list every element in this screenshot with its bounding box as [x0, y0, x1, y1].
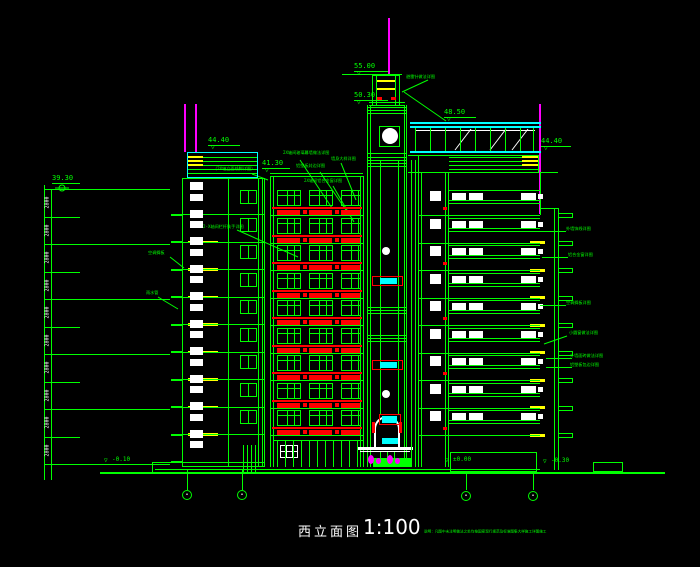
cad-line [448, 218, 540, 219]
cad-line [270, 176, 271, 467]
cad-line [277, 388, 301, 389]
floor-line [418, 408, 540, 409]
cad-line [341, 305, 361, 306]
square-window [430, 301, 441, 311]
ribbon-pane [521, 358, 536, 365]
storefront-mullion [333, 441, 334, 467]
level-facade-top: 41.30 [262, 160, 283, 167]
cad-line [277, 333, 301, 334]
cad-line [303, 293, 307, 297]
ribbon-pane [521, 248, 536, 255]
facade-window [309, 410, 333, 426]
storefront-mullion [277, 441, 278, 467]
canopy-chord [410, 151, 541, 153]
slab-tick [171, 269, 182, 271]
cad-line [52, 183, 80, 184]
cad-line [448, 286, 540, 287]
cad-line [248, 328, 249, 342]
cad-line [358, 218, 359, 234]
cad-line [326, 410, 327, 426]
cad-line [372, 75, 400, 76]
cad-line [540, 208, 558, 209]
dimension-text: 2800 [46, 271, 51, 291]
stair-window [190, 402, 203, 410]
annotation: 2X轴间玻璃幕墙做法详图 [283, 152, 329, 156]
slab-tick [171, 241, 182, 243]
cad-line [367, 110, 407, 111]
floor-line [418, 243, 540, 244]
cad-line [367, 166, 407, 167]
slab-bracket [558, 268, 573, 273]
ribbon-pane [452, 358, 466, 365]
cad-line [248, 218, 249, 232]
dimension-text: 2800 [46, 244, 51, 264]
ribbon-pane [521, 413, 536, 420]
cad-line [319, 190, 320, 206]
facade-window [277, 190, 301, 206]
slab-tick [171, 434, 182, 436]
facade-window [277, 328, 301, 344]
annotation: 2X轴间铝合金窗详图 [304, 180, 342, 184]
stair-window [190, 249, 203, 256]
cad-line [448, 203, 540, 204]
cad-line [448, 423, 540, 424]
shrub [376, 458, 381, 464]
stair-window [190, 221, 203, 228]
cad-line [367, 153, 407, 154]
cad-line [358, 383, 359, 399]
cad-line [287, 273, 288, 289]
level-antenna-top: 55.00 [354, 63, 375, 70]
dimension-text: 2800 [46, 299, 51, 319]
cad-line [248, 300, 249, 314]
spandrel-line [272, 372, 362, 374]
ribbon-pane [521, 221, 536, 228]
cad-line [294, 410, 295, 426]
glass-frame [372, 276, 403, 286]
cad-line [277, 278, 301, 279]
truss-diagonals [455, 129, 528, 150]
cad-line [335, 348, 339, 352]
grille-window [280, 445, 298, 458]
facade-window [309, 218, 333, 234]
dimension-text: 2800 [46, 381, 51, 401]
cad-line [277, 195, 301, 196]
floor-line [182, 462, 265, 463]
cad-line [319, 383, 320, 399]
truss-post [505, 128, 506, 151]
cad-line [351, 245, 352, 261]
cad-line [367, 160, 407, 161]
cad-line [319, 245, 320, 261]
cad-line [294, 273, 295, 289]
facade-window [309, 355, 333, 371]
drawing-title: 西立面图 [298, 521, 362, 540]
floor-line [418, 435, 540, 436]
shrub [395, 458, 400, 464]
cad-line [341, 360, 361, 361]
square-window [430, 246, 441, 256]
cad-line [377, 97, 382, 100]
cad-line [294, 245, 295, 261]
stair-window [190, 441, 203, 448]
cad-line [448, 245, 540, 246]
cad-line [448, 368, 540, 369]
ribbon-pane [538, 359, 543, 364]
cad-line [319, 273, 320, 289]
facade-window [277, 273, 301, 289]
level-parapet-left: 44.40 [208, 137, 229, 144]
cad-line [351, 383, 352, 399]
cad-line [354, 71, 388, 72]
cad-line [273, 176, 274, 467]
plinth-outline [450, 452, 537, 472]
cad-line [411, 160, 412, 467]
cad-line [448, 328, 540, 329]
cad-line [358, 190, 359, 206]
cad-line [277, 360, 301, 361]
slab-bracket [558, 323, 573, 328]
stair-window [190, 375, 203, 383]
grid-stem [466, 472, 467, 490]
ruler-tick [44, 354, 170, 355]
storefront-mullion [317, 441, 318, 467]
cad-line [319, 218, 320, 234]
porthole-window [382, 247, 390, 255]
cad-line [448, 273, 540, 274]
cad-line [287, 410, 288, 426]
ground-line [100, 472, 665, 474]
cad-line [326, 245, 327, 261]
cad-line [448, 396, 540, 397]
cad-line [309, 415, 333, 416]
floor-line [270, 380, 363, 381]
facade-window [309, 328, 333, 344]
stair-window [190, 182, 203, 190]
cad-line [287, 383, 288, 399]
cad-line [448, 228, 540, 229]
truss-post [520, 128, 521, 151]
ruler-tick [44, 189, 170, 190]
storefront-mullion [357, 441, 358, 467]
slab-tick [171, 461, 182, 463]
square-window [430, 219, 441, 229]
ribbon-pane [469, 386, 483, 393]
cad-line [326, 218, 327, 234]
stair-window [190, 194, 203, 201]
cad-line [448, 255, 540, 256]
stair-window [190, 237, 203, 245]
annotation: 空调搁板 [148, 252, 165, 256]
glass-frame [372, 360, 403, 370]
cad-line [303, 320, 307, 324]
square-window [430, 191, 441, 201]
ribbon-pane [452, 193, 466, 200]
parapet-band [522, 156, 538, 158]
vent-mark [443, 317, 447, 320]
slab-bracket [558, 406, 573, 411]
cad-line [270, 176, 363, 177]
floor-line [270, 408, 363, 409]
stair-window [190, 276, 203, 283]
slab-bracket [558, 378, 573, 383]
spandrel-line [272, 427, 362, 429]
cad-line [358, 245, 359, 261]
dimension-text: 2800 [46, 216, 51, 236]
cad-line [448, 338, 540, 339]
annotation: 外墙面砖做法详图 [570, 355, 603, 359]
cad-line [335, 320, 339, 324]
drawing-note: 说明：凡图中未注明做法之处均按国家现行规范及标准图集大样施工详图施工 [424, 529, 546, 534]
cad-line [448, 410, 540, 411]
cad-line [248, 273, 249, 287]
cad-line [351, 355, 352, 371]
leader-line [546, 358, 572, 359]
cad-line [367, 307, 407, 308]
spandrel-line [272, 207, 362, 209]
cad-line [208, 145, 240, 146]
cad-line [335, 265, 339, 269]
cad-line [303, 403, 307, 407]
cad-line [363, 176, 364, 467]
stair-window [190, 430, 203, 438]
truss-post [490, 128, 491, 151]
cad-line [554, 208, 555, 470]
floor-line [418, 298, 540, 299]
cad-line [448, 258, 540, 259]
cad-line [448, 200, 540, 201]
ribbon-pane [538, 332, 543, 337]
glass-frame [379, 414, 401, 425]
cad-line [335, 375, 339, 379]
ribbon-pane [469, 358, 483, 365]
storefront-mullion [349, 441, 350, 467]
storefront-mullion [285, 441, 286, 467]
storefront-mullion [341, 441, 342, 467]
dimension-text: 2800 [46, 436, 51, 456]
cad-line [358, 328, 359, 344]
parapet-box [187, 152, 258, 178]
ribbon-pane [469, 248, 483, 255]
facade-window [277, 355, 301, 371]
floor-line [418, 353, 540, 354]
cupola-band [377, 80, 395, 82]
truss-post [475, 128, 476, 151]
truss-post [460, 128, 461, 151]
ribbon-pane [538, 194, 543, 199]
cad-line [372, 422, 375, 433]
floor-line [270, 298, 363, 299]
cad-line [287, 190, 288, 206]
cad-line [319, 328, 320, 344]
spandrel-line [272, 262, 362, 264]
cad-line [277, 223, 301, 224]
cad-line [367, 338, 407, 339]
ribbon-pane [538, 277, 543, 282]
slab-tick [171, 406, 182, 408]
level-canopy: 48.50 [444, 109, 465, 116]
cad-line [335, 238, 339, 242]
floor-line [418, 325, 540, 326]
cad-line [415, 160, 416, 467]
grid-bubble: • [461, 491, 471, 501]
cad-line [294, 190, 295, 206]
level-ruler-top: 39.30 [52, 175, 73, 182]
leader-line [540, 231, 566, 232]
site-step [593, 462, 623, 472]
annotation: 外墙饰线详图 [566, 228, 591, 232]
ruler-tick [44, 244, 170, 245]
cad-line [351, 300, 352, 316]
ribbon-pane [452, 221, 466, 228]
shrub [368, 455, 374, 464]
cad-line [408, 172, 558, 173]
ribbon-pane [538, 414, 543, 419]
cad-line [367, 113, 407, 114]
cad-line [448, 383, 540, 384]
cad-line [398, 160, 399, 415]
floor-line [270, 215, 363, 216]
leader-line [546, 367, 572, 368]
leader-line [540, 305, 566, 306]
cad-line [309, 388, 333, 389]
floor-line [418, 215, 540, 216]
cad-line [448, 355, 540, 356]
cad-line [408, 155, 540, 156]
floor-line [270, 353, 363, 354]
parapet-band [522, 160, 538, 162]
annotation: 铝塑板封边详图 [296, 165, 325, 169]
cad-line [335, 430, 339, 434]
cad-line [448, 313, 540, 314]
cad-line [448, 420, 540, 421]
cad-line [309, 305, 333, 306]
grid-stem [242, 470, 243, 490]
dimension-text: 2800 [46, 354, 51, 374]
cad-line [262, 168, 290, 169]
square-window [430, 411, 441, 421]
cad-line [448, 300, 540, 301]
ribbon-pane [469, 413, 483, 420]
ribbon-pane [538, 387, 543, 392]
cad-line [270, 173, 363, 174]
facade-window [277, 410, 301, 426]
truss-post [533, 128, 534, 151]
ribbon-pane [521, 276, 536, 283]
spandrel-line [272, 400, 362, 402]
grid-bubble: • [182, 490, 192, 500]
cad-line [367, 157, 407, 158]
cad-line [326, 190, 327, 206]
cad-line [367, 163, 407, 164]
ribbon-pane [469, 331, 483, 338]
facade-window [277, 300, 301, 316]
cad-line [421, 172, 422, 467]
grid-stem [187, 470, 188, 490]
dimension-text: 2800 [46, 409, 51, 429]
facade-window [309, 245, 333, 261]
stair-window [190, 210, 203, 218]
canopy-chord [410, 122, 541, 124]
grid-bubble: • [528, 491, 538, 501]
cad-line [326, 355, 327, 371]
annotation: 小圆窗做法详图 [569, 332, 598, 336]
cad-line [391, 97, 396, 100]
cad-line [326, 273, 327, 289]
facade-window [309, 300, 333, 316]
annotation: 避雷针做法详图 [406, 76, 435, 80]
annotation: 空调搁板详图 [566, 302, 591, 306]
facade-window [309, 190, 333, 206]
slab-tick [171, 296, 182, 298]
cad-line [448, 365, 540, 366]
cad-line [358, 273, 359, 289]
cad-line [319, 300, 320, 316]
floor-line [418, 270, 540, 271]
cad-line [309, 278, 333, 279]
parapet-band [522, 164, 538, 166]
cad-line [367, 341, 407, 342]
annotation: 墙身大样详图 [331, 158, 356, 162]
ribbon-pane [452, 331, 466, 338]
slab-bracket [558, 296, 573, 301]
stair-window [190, 292, 203, 300]
cad-line [335, 403, 339, 407]
ribbon-pane [469, 221, 483, 228]
slab-tick [171, 214, 182, 216]
slab-bracket [558, 213, 573, 218]
floor-line [270, 435, 363, 436]
cad-line [369, 102, 405, 103]
cad-line [341, 278, 361, 279]
leader-line [542, 257, 568, 258]
facade-window [277, 383, 301, 399]
cad-line [277, 250, 301, 251]
slab-tick [171, 324, 182, 326]
ruler-tick [44, 299, 170, 300]
cad-line [351, 273, 352, 289]
cad-line [287, 355, 288, 371]
cad-line [358, 355, 359, 371]
truss-post [415, 128, 416, 151]
square-window [430, 356, 441, 366]
cad-line [448, 190, 540, 191]
cad-line [326, 383, 327, 399]
cad-line [448, 231, 540, 232]
ribbon-pane [452, 413, 466, 420]
cad-line [351, 190, 352, 206]
level-mark-icon: ▽ [543, 459, 547, 465]
annotation: 雨水管 [146, 292, 158, 296]
lightning-rod [184, 104, 186, 152]
cad-line [326, 328, 327, 344]
cad-line [303, 210, 307, 214]
facade-window [309, 273, 333, 289]
cupola-band [377, 88, 395, 90]
ribbon-pane [469, 193, 483, 200]
stair-window [190, 414, 203, 421]
square-window [430, 329, 441, 339]
cad-line [294, 300, 295, 316]
cad-line [309, 195, 333, 196]
stair-window [190, 265, 203, 273]
floor-line [418, 380, 540, 381]
cad-line [351, 328, 352, 344]
cad-line [558, 208, 559, 470]
cad-line [341, 415, 361, 416]
storefront-mullion [293, 441, 294, 467]
cad-line [303, 430, 307, 434]
